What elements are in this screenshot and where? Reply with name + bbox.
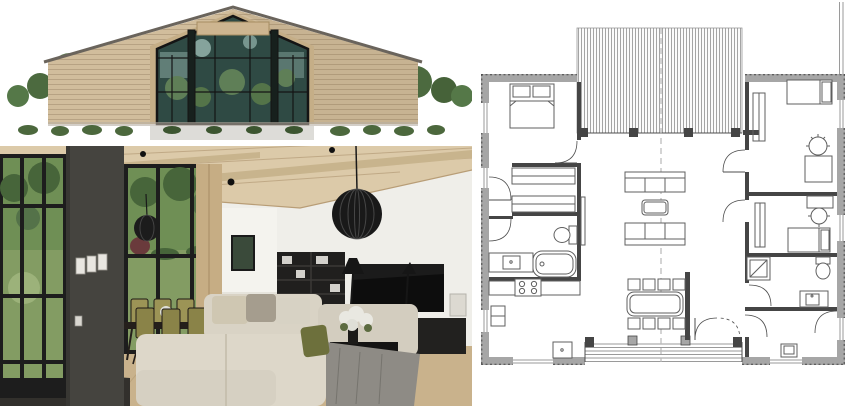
floor-plan-drawing <box>478 0 850 406</box>
charcoal-column <box>66 146 124 406</box>
leaning-frame <box>450 294 466 316</box>
base-shadow <box>48 122 418 126</box>
sofa-pillow <box>276 298 310 324</box>
exterior-scene <box>0 0 472 140</box>
window <box>481 168 489 188</box>
window <box>481 103 489 133</box>
single-bed <box>788 228 830 252</box>
bathtub <box>533 251 576 277</box>
stove <box>515 279 541 296</box>
back-window <box>232 236 254 270</box>
double-bed <box>510 84 554 128</box>
window <box>837 100 845 128</box>
sofa-pillow <box>212 296 248 324</box>
house-plan-collage <box>0 0 850 406</box>
utility-fixtures <box>781 344 797 357</box>
living-room-photo <box>0 146 472 406</box>
porch-roof-hatch <box>577 28 742 137</box>
header-beam <box>197 22 269 35</box>
wall-outlet <box>75 316 82 326</box>
interior-scene <box>0 146 472 406</box>
fridge-cabinet <box>491 306 505 326</box>
single-bed <box>787 80 832 104</box>
window <box>481 310 489 332</box>
bedroom1-fixtures <box>510 84 554 128</box>
toilet <box>816 257 830 279</box>
window <box>770 357 802 365</box>
kitchen-island <box>553 342 572 358</box>
olive-pillow <box>300 324 330 357</box>
window <box>837 215 845 241</box>
utility-sink <box>781 344 797 357</box>
left-garden-window <box>0 154 66 398</box>
window <box>837 318 845 340</box>
sofa <box>625 172 685 192</box>
window <box>513 357 553 365</box>
toilet <box>554 226 577 244</box>
sofa-pillow <box>246 294 276 322</box>
sofa <box>625 223 685 245</box>
house-exterior-photo <box>0 0 472 140</box>
shower <box>747 257 770 280</box>
coffee-table <box>642 200 668 215</box>
dining-table <box>627 292 683 316</box>
tv-bench <box>581 197 585 245</box>
floor-plan <box>478 0 850 406</box>
vanity-sink <box>800 291 828 307</box>
